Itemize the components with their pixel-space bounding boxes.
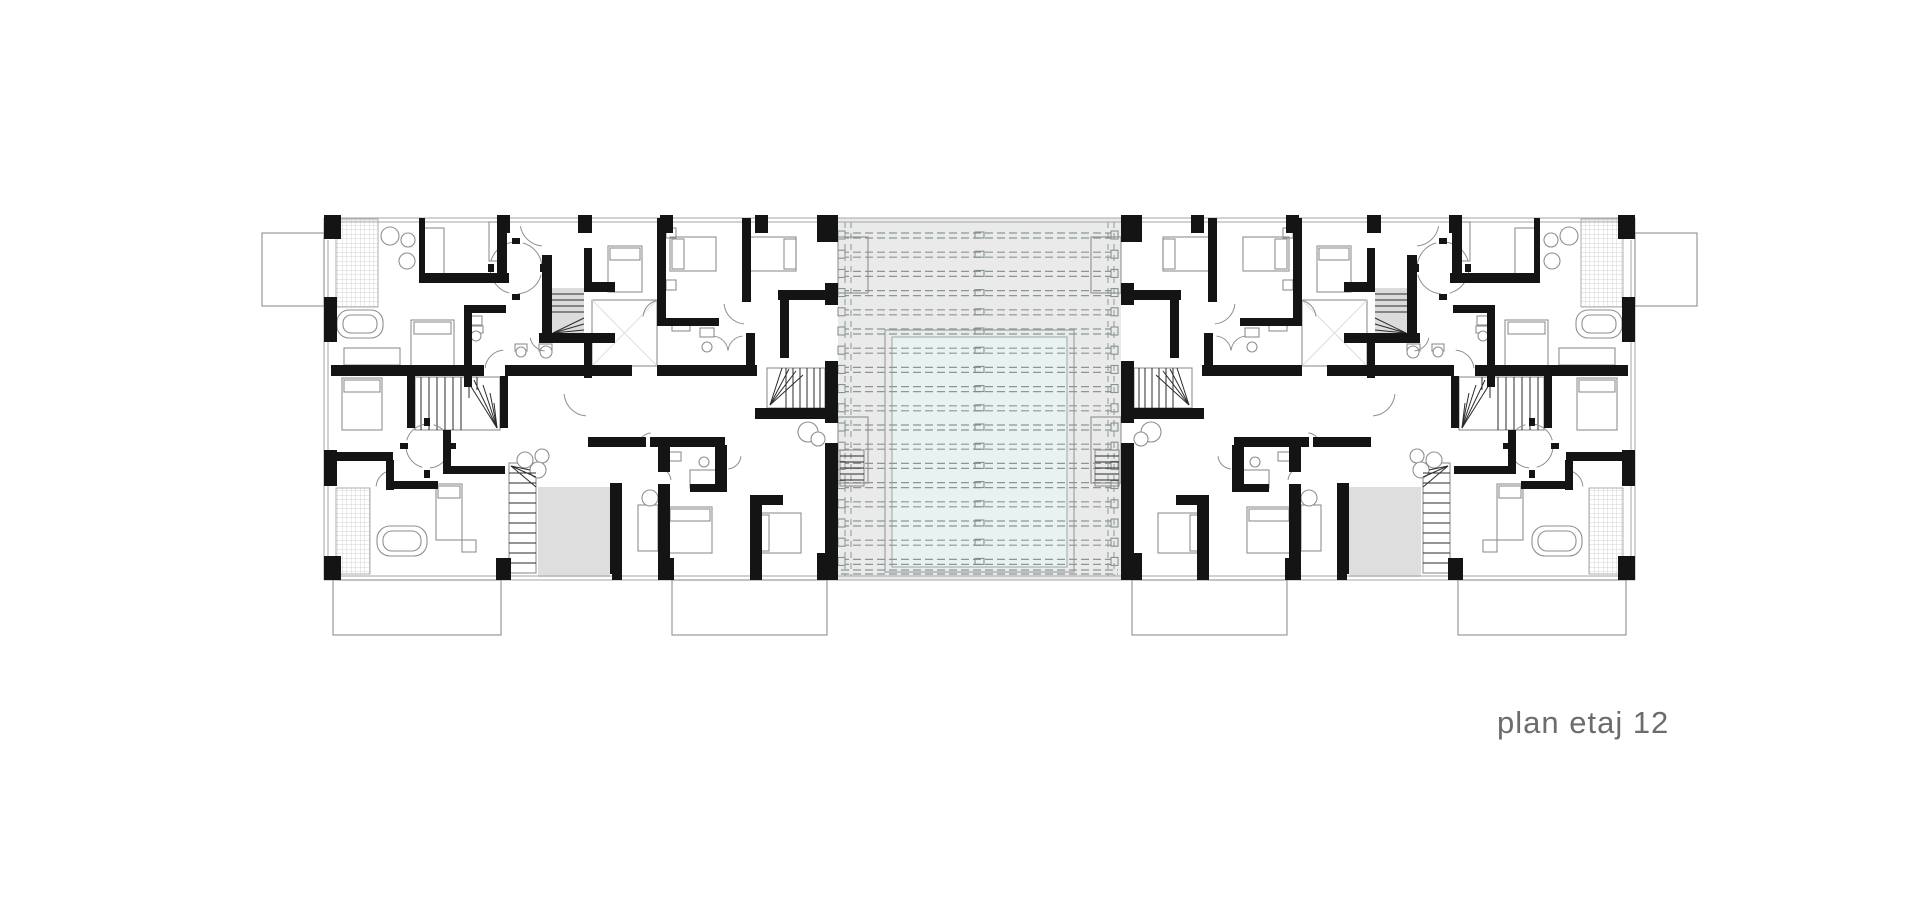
wall [1197, 495, 1209, 574]
wall [1475, 365, 1628, 376]
plan-title: plan etaj 12 [1497, 705, 1669, 740]
round-furniture [1426, 452, 1442, 468]
wall [1622, 297, 1635, 342]
wall [1439, 238, 1447, 244]
round-furniture [1433, 347, 1443, 357]
furniture-outline [672, 580, 827, 635]
apartment-wing-right [1091, 215, 1697, 635]
round-furniture [535, 449, 549, 463]
furniture-outline [750, 237, 796, 271]
wall [424, 418, 430, 426]
round-furniture [517, 452, 533, 468]
bathtub [1538, 531, 1576, 551]
furniture-outline [1245, 328, 1259, 337]
furniture-outline [672, 239, 684, 269]
column-mark [838, 423, 845, 431]
column-mark [838, 308, 845, 316]
column-mark [838, 327, 845, 335]
wall [755, 408, 833, 419]
wall [1367, 215, 1381, 233]
furniture-outline [1275, 239, 1287, 269]
wall [488, 264, 494, 272]
wall [407, 376, 415, 428]
furniture-outline [1163, 239, 1175, 269]
column-mark [838, 557, 845, 565]
round-furniture [516, 347, 526, 357]
door-swing [1231, 336, 1246, 351]
wall [512, 238, 520, 244]
wall [400, 443, 408, 449]
furniture-outline [1163, 237, 1209, 271]
wall [750, 495, 762, 574]
wall [658, 447, 670, 472]
wall [539, 333, 615, 343]
wall [419, 218, 425, 278]
wall [817, 215, 838, 242]
round-furniture [1247, 342, 1257, 352]
floor-fill [1349, 487, 1421, 577]
round-furniture [642, 490, 658, 506]
furniture-outline [700, 328, 714, 337]
wall [331, 365, 484, 376]
door-swing [1373, 394, 1395, 416]
wall [512, 294, 520, 300]
wall [658, 484, 670, 574]
column-mark [838, 442, 845, 450]
wall [464, 305, 506, 313]
furniture-outline [438, 486, 460, 498]
furniture-outline [262, 233, 324, 306]
door-swing [728, 456, 741, 469]
wall [1451, 376, 1459, 428]
wall [1521, 481, 1573, 489]
furniture-outline [344, 348, 400, 365]
wall [1448, 558, 1463, 580]
furniture-outline [670, 509, 710, 521]
wall [825, 443, 838, 547]
wall [1618, 215, 1635, 239]
wall [1450, 273, 1540, 283]
furniture-outline [666, 280, 676, 290]
stair-tread [1163, 371, 1189, 405]
furniture-outline [1497, 484, 1523, 540]
round-furniture [1410, 449, 1424, 463]
door-swing [1216, 336, 1231, 351]
wall [443, 466, 505, 474]
furniture-outline [1283, 280, 1293, 290]
wall [746, 333, 755, 368]
furniture-outline [1579, 380, 1615, 392]
furniture-outline [1249, 509, 1289, 521]
wall [1125, 290, 1181, 300]
wall [1337, 483, 1349, 574]
wall [778, 290, 834, 300]
wall [500, 376, 508, 428]
wall [1289, 447, 1301, 472]
furniture-outline [1247, 507, 1291, 553]
wall [448, 443, 456, 449]
round-furniture [811, 432, 825, 446]
wall [1240, 318, 1302, 326]
wall [1566, 452, 1628, 461]
wall [1202, 365, 1302, 376]
furniture-outline [668, 507, 712, 553]
door-swing [724, 304, 744, 324]
round-furniture [1560, 227, 1578, 245]
wall [1413, 264, 1419, 272]
wall [1289, 484, 1301, 574]
round-furniture [1544, 233, 1558, 247]
column-mark [838, 365, 845, 373]
wall [610, 483, 622, 574]
wall [1544, 376, 1552, 428]
wall [1449, 215, 1462, 233]
column-mark [838, 269, 845, 277]
wall [750, 495, 783, 505]
column-mark [838, 250, 845, 258]
wall [1121, 547, 1134, 580]
furniture-outline [670, 237, 716, 271]
wall [1344, 333, 1420, 343]
furniture-outline [1508, 322, 1545, 334]
furniture-outline [610, 248, 640, 260]
wall [1126, 408, 1204, 419]
apartment-wing-left [262, 215, 868, 635]
wall [1367, 248, 1375, 288]
balcony-hatch [1581, 219, 1623, 307]
wall [505, 365, 632, 376]
stair-tread [474, 380, 497, 428]
wall [742, 218, 751, 302]
atrium-courtyard [838, 218, 1121, 580]
wall [497, 215, 510, 233]
wall [1327, 365, 1454, 376]
wall [1465, 264, 1471, 272]
wall [1529, 418, 1535, 426]
wall [1176, 495, 1209, 505]
stair-tread [1462, 380, 1485, 428]
furniture-outline [1243, 237, 1289, 271]
column-mark [838, 519, 845, 527]
furniture-outline [1499, 486, 1521, 498]
door-swing [1537, 448, 1553, 467]
furniture-outline [1483, 540, 1497, 552]
door-swing [1218, 456, 1231, 469]
bathtub [343, 315, 377, 333]
furniture-outline [333, 580, 501, 635]
round-furniture [471, 331, 481, 341]
wall [1208, 218, 1217, 302]
round-furniture [401, 233, 415, 247]
furniture-outline [1458, 580, 1626, 635]
wall [497, 233, 507, 278]
furniture-outline [509, 463, 536, 573]
furniture-outline [1319, 248, 1349, 260]
wall [1453, 305, 1495, 313]
round-furniture [702, 342, 712, 352]
door-swing [1418, 275, 1441, 294]
pool [892, 337, 1067, 567]
door-swing [1456, 350, 1474, 368]
furniture-outline [1301, 505, 1321, 551]
furniture-outline [342, 378, 382, 430]
door-swing [728, 336, 743, 351]
wall [1503, 443, 1511, 449]
wall [657, 365, 757, 376]
door-swing [564, 394, 586, 416]
furniture-outline [1505, 320, 1548, 368]
wall [419, 273, 509, 283]
wall [825, 547, 838, 580]
furniture-outline [638, 505, 658, 551]
floorplan-page: plan etaj 12 [0, 0, 1920, 900]
furniture-outline [1559, 348, 1615, 365]
floor-plan-drawing: plan etaj 12 [0, 0, 1920, 900]
wall [588, 437, 646, 447]
furniture-outline [1132, 580, 1287, 635]
furniture-outline [344, 380, 380, 392]
balcony-hatch [336, 488, 370, 574]
round-furniture [381, 227, 399, 245]
furniture-outline [424, 228, 444, 274]
round-furniture [1544, 253, 1560, 269]
door-swing [523, 243, 542, 266]
furniture-outline [1515, 228, 1535, 274]
wall [1313, 437, 1371, 447]
wall [324, 297, 337, 342]
wall [1529, 470, 1535, 478]
bathtub [383, 531, 421, 551]
wall [657, 318, 719, 326]
wall [1439, 294, 1447, 300]
bathtub [1582, 315, 1616, 333]
door-swing [1215, 304, 1235, 324]
column-mark [838, 385, 845, 393]
wall [1232, 484, 1269, 492]
wall [331, 452, 393, 461]
wall [424, 470, 430, 478]
wall [650, 437, 725, 447]
round-furniture [1250, 457, 1260, 467]
round-furniture [1407, 346, 1419, 358]
door-swing [713, 336, 728, 351]
wall [1534, 218, 1540, 278]
round-furniture [399, 253, 415, 269]
furniture-outline [1423, 463, 1450, 573]
furniture-outline [414, 322, 451, 334]
door-swing [406, 448, 422, 467]
wall [496, 558, 511, 580]
column-mark [838, 538, 845, 546]
wall [584, 248, 592, 288]
wall [324, 556, 341, 580]
wall [780, 300, 789, 358]
wall [1293, 218, 1302, 320]
round-furniture [699, 457, 709, 467]
wall [1234, 437, 1309, 447]
wall [1121, 215, 1142, 242]
wall [690, 484, 727, 492]
wall [1618, 556, 1635, 580]
wall [1121, 443, 1134, 547]
column-mark [838, 500, 845, 508]
furniture-outline [462, 540, 476, 552]
wall [657, 218, 666, 320]
furniture-outline [784, 239, 796, 269]
wall [1454, 466, 1516, 474]
door-swing [518, 275, 541, 294]
door-swing [485, 350, 503, 368]
furniture-outline [1635, 233, 1697, 306]
column-mark [838, 346, 845, 354]
furniture-outline [1577, 378, 1617, 430]
wall [540, 264, 546, 272]
stair-tread [770, 371, 796, 405]
furniture-outline [411, 320, 454, 368]
column-mark [838, 231, 845, 239]
wall [1191, 215, 1204, 233]
wall [386, 481, 438, 489]
wall [324, 215, 341, 239]
round-furniture [1478, 331, 1488, 341]
round-furniture [540, 346, 552, 358]
wall [1551, 443, 1559, 449]
wall [1204, 333, 1213, 368]
column-mark [838, 481, 845, 489]
balcony-hatch [336, 219, 378, 307]
wall [1452, 233, 1462, 278]
furniture-outline [436, 484, 462, 540]
round-furniture [1134, 432, 1148, 446]
balcony-hatch [1589, 488, 1623, 574]
column-mark [838, 404, 845, 412]
wall [1170, 300, 1179, 358]
wall [755, 215, 768, 233]
wall [578, 215, 592, 233]
round-furniture [1301, 490, 1317, 506]
floor-fill [538, 487, 610, 577]
door-swing [1417, 243, 1436, 266]
